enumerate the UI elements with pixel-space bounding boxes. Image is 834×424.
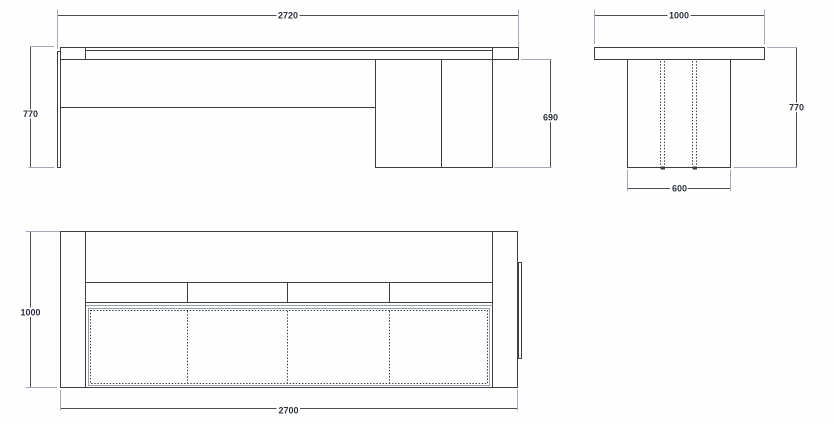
svg-text:1000: 1000 — [669, 11, 689, 21]
svg-text:2720: 2720 — [278, 11, 298, 21]
svg-text:2700: 2700 — [278, 406, 298, 416]
svg-text:690: 690 — [543, 112, 558, 122]
svg-text:770: 770 — [23, 109, 38, 119]
svg-text:1000: 1000 — [20, 307, 40, 317]
svg-text:600: 600 — [672, 184, 687, 194]
svg-text:770: 770 — [789, 102, 804, 112]
